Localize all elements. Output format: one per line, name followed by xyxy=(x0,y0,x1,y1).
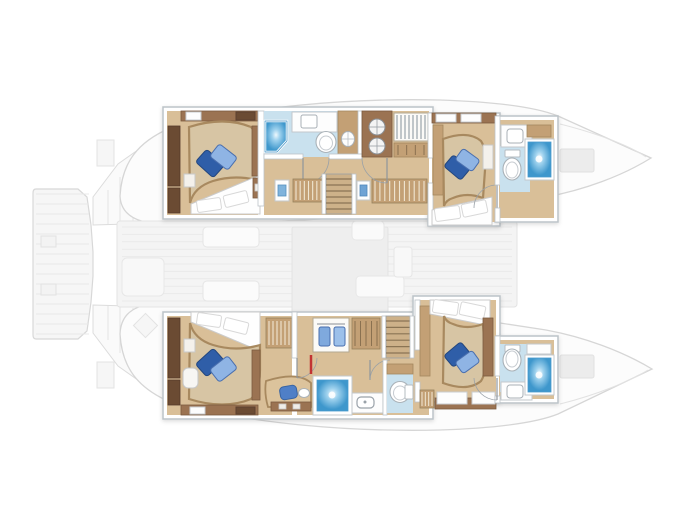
port-aft-locker xyxy=(168,188,180,213)
port-stairs-rail xyxy=(352,174,356,214)
stbd-desk-drawers xyxy=(271,402,311,411)
port-fwdbath-shower-head xyxy=(536,156,543,163)
cockpit-table-ghost xyxy=(122,258,164,296)
port-aft-bath-sink xyxy=(301,115,317,128)
port-stairs-rail xyxy=(322,174,326,214)
stbd-fwd-fwindow xyxy=(472,392,495,404)
port-fwdbath-toilet-tank xyxy=(505,150,520,157)
wall-port-fwdbath-left xyxy=(495,116,500,185)
stbd-fwd-fwindow xyxy=(437,392,467,404)
stbd-fwd-headstrip xyxy=(483,318,493,376)
stbd-fwdbath-shelf xyxy=(527,344,551,354)
port-aft-wardrobe xyxy=(168,126,180,186)
saloon-ghost-seat xyxy=(356,276,404,297)
wall-stbd-fwdbath-left xyxy=(495,336,500,376)
saloon-ghost-console xyxy=(394,247,412,277)
port-corridor-locker-b-item xyxy=(360,185,367,196)
wall-stbd-aftcabin xyxy=(292,312,297,358)
port-fwdbath-shelf xyxy=(527,125,551,137)
stbd-aft-louver xyxy=(266,318,292,348)
wall-port-bath-bottom xyxy=(329,154,362,159)
stbd-toilet-tank xyxy=(405,385,413,399)
port-aft-toilet-bowl xyxy=(316,132,336,153)
stbd-aft-fcushion xyxy=(236,407,255,414)
stbd-fwdbath-shower-head xyxy=(536,372,543,379)
transom-box-ghost-top xyxy=(97,140,114,166)
stbd-desk-knob xyxy=(279,404,286,409)
port-fwd-nightstand xyxy=(483,145,493,169)
wall-stbd-fwdcabin-left xyxy=(415,300,420,350)
wall-port-fwdbath-left xyxy=(495,208,500,222)
stern-cleat-bottom xyxy=(41,284,56,295)
stbd-desk-knob xyxy=(293,404,300,409)
port-mid-shelf xyxy=(394,143,428,157)
transom-box-ghost-bottom xyxy=(97,362,114,388)
bow-hatch-ghost-top xyxy=(560,149,594,172)
stbd-fwdbath-sink xyxy=(507,385,523,398)
stbd-aft-chair xyxy=(183,368,198,388)
stbd-toilet-counter xyxy=(387,364,413,374)
port-fwdbath-sink xyxy=(507,129,523,143)
stbd-aft-locker xyxy=(168,380,180,405)
port-fwd-foot-pillow xyxy=(434,205,461,221)
port-fwd-window xyxy=(436,114,456,122)
wall-stbd-fwdcabin-left xyxy=(415,382,420,402)
port-aft-hatch xyxy=(186,112,201,120)
stbd-stairs-rail xyxy=(382,316,386,358)
port-corridor-locker-item xyxy=(278,185,286,196)
stern-cleat-top xyxy=(41,236,56,247)
stbd-desk-chair xyxy=(279,385,298,401)
stbd-shirt xyxy=(334,327,345,346)
port-hanging-locker xyxy=(394,113,428,141)
stbd-fwd-head-pillow xyxy=(432,299,459,315)
stbd-aft-side-strip xyxy=(252,350,260,400)
port-stairs xyxy=(326,174,352,214)
wall-stbd-toiletroom xyxy=(383,360,387,415)
cockpit-bench-ghost xyxy=(203,227,259,247)
floor-plan-svg xyxy=(0,0,700,525)
stbd-shirt xyxy=(319,327,330,346)
wall-port-bath-right xyxy=(358,111,362,157)
wall-port-aftcabin xyxy=(258,111,264,206)
stbd-desk-basin xyxy=(299,389,310,398)
port-fwd-side-strip xyxy=(433,125,443,195)
stbd-aft-nightstand xyxy=(184,339,195,352)
port-fwd-window xyxy=(461,114,481,122)
stbd-aft-wardrobe xyxy=(168,318,180,378)
port-aft-headcushion xyxy=(236,112,255,120)
port-aft-nightstand xyxy=(184,174,195,187)
bow-hatch-ghost-bottom xyxy=(560,355,594,378)
stbd-stairs xyxy=(386,316,410,358)
cockpit-bench-ghost xyxy=(203,281,259,301)
stbd-fwd-side-strip xyxy=(420,306,430,376)
saloon-ghost-seat xyxy=(352,221,384,240)
stbd-sink-dot xyxy=(364,401,367,404)
stbd-stairs-rail xyxy=(410,316,414,358)
stbd-shower-head xyxy=(329,392,336,399)
wall-port-bath-bottom xyxy=(264,154,303,159)
port-louver-lines xyxy=(296,181,321,200)
catamaran-floor-plan xyxy=(0,0,700,525)
stbd-aft-fwindow xyxy=(190,407,205,414)
